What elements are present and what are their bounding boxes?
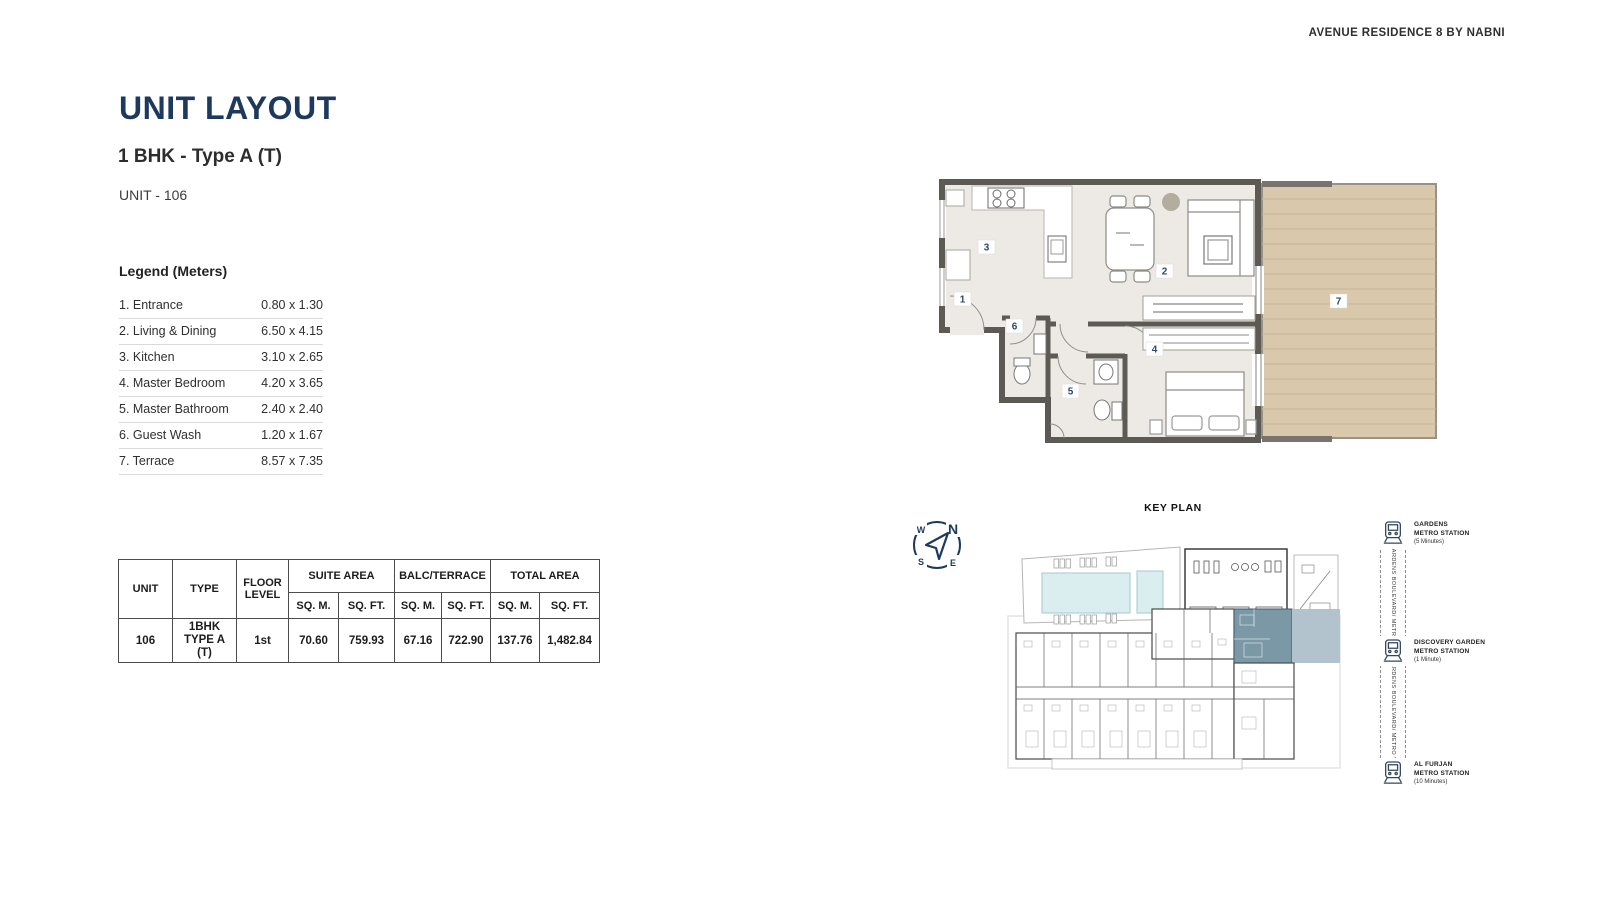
legend: Legend (Meters) 1. Entrance0.80 x 1.30 2… <box>119 263 323 475</box>
col-floor-level: FLOOR LEVEL <box>237 560 289 619</box>
col-balc-sqft: SQ. FT. <box>442 593 491 619</box>
legend-room-dims: 4.20 x 3.65 <box>261 376 323 390</box>
station-name: METRO STATION <box>1414 530 1509 539</box>
legend-room-name: 6. Guest Wash <box>119 428 201 442</box>
col-balc-sqm: SQ. M. <box>395 593 442 619</box>
legend-row: 5. Master Bathroom2.40 x 2.40 <box>119 397 323 423</box>
cell-floor: 1st <box>237 619 289 663</box>
corridor-label: GARDENS BOULEVARD/ METRO VIEW <box>1381 558 1405 646</box>
station-name: AL FURJAN <box>1414 761 1509 770</box>
floor-plan-drawing: 1 2 3 4 5 6 7 <box>938 178 1440 446</box>
plant-icon <box>1162 193 1180 211</box>
highlighted-unit <box>1234 609 1292 663</box>
metro-icon <box>1379 758 1407 788</box>
col-unit: UNIT <box>119 560 173 619</box>
fridge-icon <box>946 250 970 280</box>
station-time: (10 Minutes) <box>1414 778 1509 787</box>
legend-room-name: 2. Living & Dining <box>119 324 216 338</box>
station-name: METRO STATION <box>1414 770 1509 779</box>
key-plan-drawing <box>1002 521 1347 783</box>
pool-small <box>1137 571 1163 613</box>
col-total-area: TOTAL AREA <box>491 560 600 593</box>
legend-row: 7. Terrace8.57 x 7.35 <box>119 449 323 475</box>
metro-icon <box>1379 636 1407 666</box>
sofa-set <box>1188 200 1254 276</box>
compass-n: N <box>948 521 958 537</box>
legend-room-name: 5. Master Bathroom <box>119 402 229 416</box>
area-table: UNIT TYPE FLOOR LEVEL SUITE AREA BALC/TE… <box>118 559 600 663</box>
legend-room-dims: 2.40 x 2.40 <box>261 402 323 416</box>
compass-e: E <box>950 558 956 568</box>
legend-room-dims: 3.10 x 2.65 <box>261 350 323 364</box>
entrance-opening <box>950 325 984 335</box>
station-time: (5 Minutes) <box>1414 538 1509 547</box>
dining-set <box>1106 196 1154 282</box>
col-suite-area: SUITE AREA <box>289 560 395 593</box>
col-balc-terrace: BALC/TERRACE <box>395 560 491 593</box>
legend-row: 4. Master Bedroom4.20 x 3.65 <box>119 371 323 397</box>
station-name: GARDENS <box>1414 521 1509 530</box>
brand-header: AVENUE RESIDENCE 8 BY NABNI <box>1309 27 1505 39</box>
room-label-7: 7 <box>1336 297 1342 308</box>
cell-balc-sqft: 722.90 <box>442 619 491 663</box>
legend-row: 6. Guest Wash1.20 x 1.67 <box>119 423 323 449</box>
page-title: UNIT LAYOUT <box>119 90 337 127</box>
legend-room-name: 3. Kitchen <box>119 350 175 364</box>
room-label-3: 3 <box>984 243 990 254</box>
station-time: (1 Minute) <box>1414 656 1509 665</box>
compass-icon: N W S E <box>906 514 968 576</box>
legend-room-dims: 1.20 x 1.67 <box>261 428 323 442</box>
cell-type-line2: TYPE A (T) <box>176 634 233 660</box>
cell-unit: 106 <box>119 619 173 663</box>
cell-suite-sqft: 759.93 <box>339 619 395 663</box>
legend-room-dims: 8.57 x 7.35 <box>261 454 323 468</box>
metro-station-label: GARDENS METRO STATION (5 Minutes) <box>1414 521 1509 547</box>
metro-station-label: DISCOVERY GARDEN METRO STATION (1 Minute… <box>1414 639 1509 665</box>
room-label-2: 2 <box>1162 267 1168 278</box>
highlighted-terrace <box>1292 609 1340 663</box>
cell-type-line1: 1BHK <box>176 621 233 634</box>
compass-s: S <box>918 557 924 567</box>
corridor-label: GARDENS BOULEVARD/ METRO VIEW <box>1381 672 1405 760</box>
legend-room-dims: 6.50 x 4.15 <box>261 324 323 338</box>
legend-row: 3. Kitchen3.10 x 2.65 <box>119 345 323 371</box>
station-name: DISCOVERY GARDEN <box>1414 639 1509 648</box>
room-label-1: 1 <box>960 295 966 306</box>
col-total-sqm: SQ. M. <box>491 593 540 619</box>
room-label-5: 5 <box>1068 387 1074 398</box>
cell-type: 1BHKTYPE A (T) <box>173 619 237 663</box>
legend-room-name: 4. Master Bedroom <box>119 376 225 390</box>
tv-console <box>1143 296 1255 320</box>
col-suite-sqft: SQ. FT. <box>339 593 395 619</box>
cell-total-sqft: 1,482.84 <box>540 619 600 663</box>
unit-type-subtitle: 1 BHK - Type A (T) <box>118 146 282 168</box>
legend-room-name: 1. Entrance <box>119 298 183 312</box>
table-row: 106 1BHKTYPE A (T) 1st 70.60 759.93 67.1… <box>119 619 600 663</box>
col-suite-sqm: SQ. M. <box>289 593 339 619</box>
unit-layout-page: AVENUE RESIDENCE 8 BY NABNI UNIT LAYOUT … <box>0 0 1600 900</box>
metro-station-label: AL FURJAN METRO STATION (10 Minutes) <box>1414 761 1509 787</box>
legend-row: 2. Living & Dining6.50 x 4.15 <box>119 319 323 345</box>
cell-total-sqm: 137.76 <box>491 619 540 663</box>
metro-icon <box>1379 518 1407 548</box>
room-label-6: 6 <box>1012 322 1018 333</box>
cell-suite-sqm: 70.60 <box>289 619 339 663</box>
legend-row: 1. Entrance0.80 x 1.30 <box>119 293 323 319</box>
key-plan-title: KEY PLAN <box>1120 502 1226 514</box>
pool <box>1042 573 1130 613</box>
cell-balc-sqm: 67.16 <box>395 619 442 663</box>
station-name: METRO STATION <box>1414 648 1509 657</box>
unit-number: UNIT - 106 <box>119 187 187 203</box>
col-type: TYPE <box>173 560 237 619</box>
legend-room-name: 7. Terrace <box>119 454 174 468</box>
col-total-sqft: SQ. FT. <box>540 593 600 619</box>
legend-room-dims: 0.80 x 1.30 <box>261 298 323 312</box>
terrace-area <box>1262 181 1436 442</box>
legend-title: Legend (Meters) <box>119 263 323 279</box>
compass-needle <box>926 533 948 559</box>
room-label-4: 4 <box>1152 345 1158 356</box>
compass-w: W <box>917 525 926 535</box>
bed <box>1150 372 1256 436</box>
